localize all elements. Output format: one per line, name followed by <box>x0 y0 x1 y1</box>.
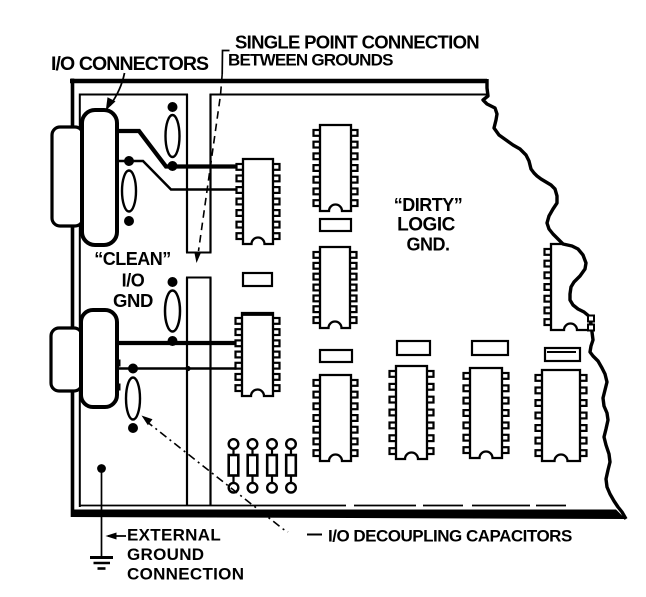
svg-text:CONNECTION: CONNECTION <box>127 565 244 584</box>
svg-text:I/O CONNECTORS: I/O CONNECTORS <box>51 53 209 75</box>
svg-text:I/O DECOUPLING CAPACITORS: I/O DECOUPLING CAPACITORS <box>328 527 572 546</box>
svg-text:“DIRTY”: “DIRTY” <box>394 195 463 215</box>
svg-text:BETWEEN GROUNDS: BETWEEN GROUNDS <box>228 51 393 70</box>
svg-text:GND.: GND. <box>407 235 450 255</box>
svg-text:GROUND: GROUND <box>127 545 204 564</box>
svg-text:LOGIC: LOGIC <box>397 215 455 236</box>
svg-text:SINGLE POINT CONNECTION: SINGLE POINT CONNECTION <box>235 32 479 53</box>
svg-text:EXTERNAL: EXTERNAL <box>127 526 221 545</box>
svg-text:GND: GND <box>113 290 153 311</box>
svg-text:“CLEAN”: “CLEAN” <box>94 249 171 269</box>
svg-text:I/O: I/O <box>122 271 145 291</box>
